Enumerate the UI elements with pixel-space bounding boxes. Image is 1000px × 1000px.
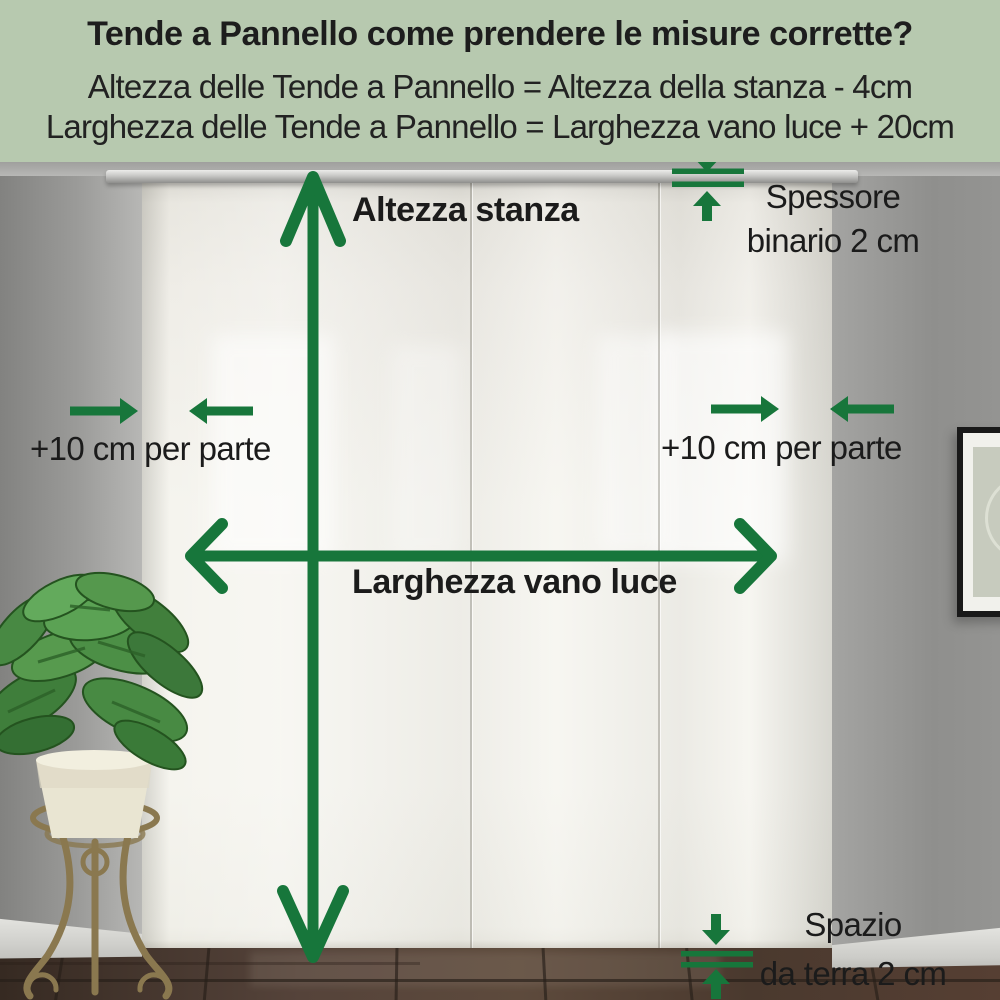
rail-thickness-label-line1: Spessore	[727, 175, 939, 219]
height-formula-text: Altezza delle Tende a Pannello = Altezza…	[0, 67, 1000, 107]
side-add-left-label: +10 cm per parte	[30, 430, 271, 468]
infographic-canvas: Tende a Pannello come prendere le misure…	[0, 0, 1000, 1000]
left-wall	[0, 176, 142, 1000]
rail-thickness-label: Spessore binario 2 cm	[727, 175, 939, 263]
floor-gap-label-line1: Spazio	[747, 900, 959, 949]
side-add-right-label: +10 cm per parte	[661, 429, 902, 467]
window-width-label: Larghezza vano luce	[352, 563, 677, 602]
picture-frame-artwork	[973, 447, 1000, 597]
page-title: Tende a Pannello come prendere le misure…	[0, 0, 1000, 54]
rail-thickness-label-line2: binario 2 cm	[727, 219, 939, 263]
width-formula-text: Larghezza delle Tende a Pannello = Largh…	[0, 107, 1000, 147]
picture-frame	[957, 427, 1000, 617]
floor-gap-label-line2: da terra 2 cm	[747, 949, 959, 998]
header-band: Tende a Pannello come prendere le misure…	[0, 0, 1000, 162]
room-height-label: Altezza stanza	[352, 191, 579, 230]
floor-gap-label: Spazio da terra 2 cm	[747, 900, 959, 998]
window-glow	[392, 345, 462, 560]
